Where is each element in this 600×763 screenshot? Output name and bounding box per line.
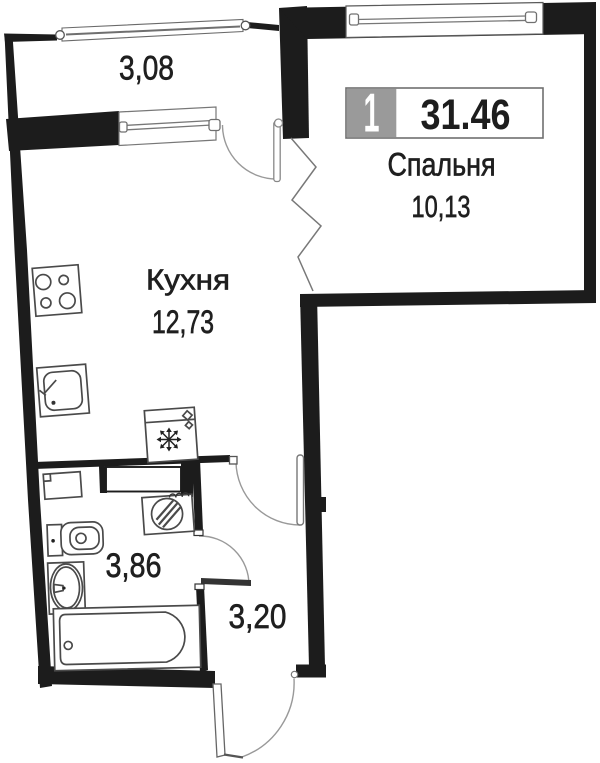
svg-text:3,20: 3,20 bbox=[229, 598, 287, 636]
svg-text:3,86: 3,86 bbox=[106, 547, 162, 585]
svg-text:Кухня: Кухня bbox=[146, 265, 230, 297]
svg-text:Спальня: Спальня bbox=[388, 147, 496, 183]
svg-text:12,73: 12,73 bbox=[152, 304, 214, 340]
svg-text:1: 1 bbox=[364, 82, 380, 144]
svg-text:31.46: 31.46 bbox=[421, 91, 511, 139]
svg-text:3,08: 3,08 bbox=[119, 50, 174, 88]
svg-text:10,13: 10,13 bbox=[412, 189, 471, 224]
